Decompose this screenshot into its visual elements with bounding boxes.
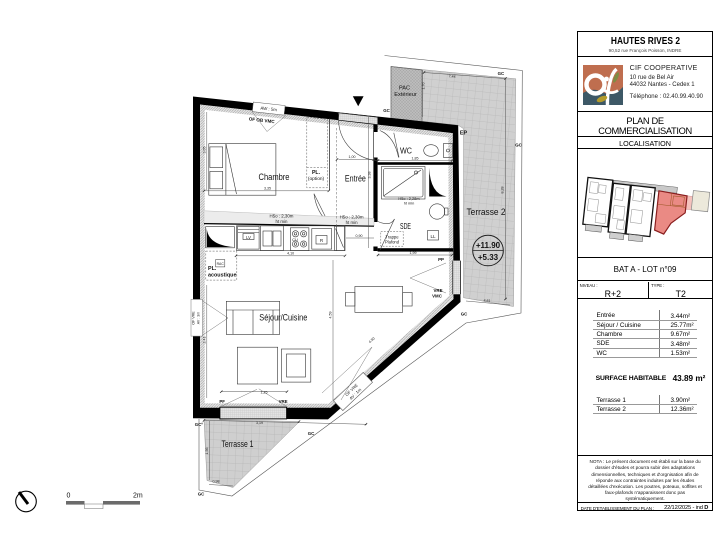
svg-text:Chambre: Chambre <box>259 172 290 182</box>
svg-text:2,41: 2,41 <box>202 337 206 344</box>
svg-text:VRE: VRE <box>433 288 442 293</box>
svg-text:LL: LL <box>430 234 436 239</box>
svg-text:ht min: ht min <box>276 219 289 224</box>
svg-text:4,10: 4,10 <box>287 251 294 255</box>
svg-text:2m: 2m <box>133 493 143 500</box>
svg-text:GC: GC <box>383 108 390 113</box>
svg-text:4,61: 4,61 <box>483 299 490 303</box>
svg-text:+5.33: +5.33 <box>478 253 499 262</box>
svg-text:1,00: 1,00 <box>349 155 356 159</box>
svg-text:GC: GC <box>515 143 522 148</box>
svg-text:VMC: VMC <box>432 294 443 299</box>
svg-text:8,28: 8,28 <box>501 187 505 194</box>
svg-text:OF VRE: OF VRE <box>192 311 196 325</box>
svg-text:OF OB VMC: OF OB VMC <box>248 116 275 124</box>
svg-text:+11.90: +11.90 <box>476 241 501 250</box>
svg-text:3,19: 3,19 <box>256 421 263 425</box>
svg-text:SDE: SDE <box>400 222 411 231</box>
svg-text:1,56: 1,56 <box>205 448 209 455</box>
svg-text:ht min: ht min <box>404 201 415 206</box>
svg-text:GC: GC <box>198 491 205 496</box>
svg-text:PP: PP <box>438 257 444 262</box>
svg-text:H5o : 2,30m: H5o : 2,30m <box>340 215 364 220</box>
svg-text:WC: WC <box>400 145 412 155</box>
svg-text:PL.: PL. <box>312 170 321 176</box>
svg-text:(option): (option) <box>308 176 325 182</box>
svg-text:3,38: 3,38 <box>367 172 371 179</box>
svg-text:Séjour/Cuisine: Séjour/Cuisine <box>259 312 307 322</box>
svg-text:AV : 3m: AV : 3m <box>197 312 201 325</box>
svg-text:PAC: PAC <box>399 86 410 92</box>
svg-text:0: 0 <box>67 493 71 500</box>
svg-text:0,98: 0,98 <box>213 479 220 483</box>
svg-text:Plafond: Plafond <box>385 240 400 245</box>
svg-text:acoustique: acoustique <box>208 273 236 279</box>
svg-text:4,50: 4,50 <box>368 336 376 344</box>
svg-text:GC: GC <box>308 431 315 436</box>
svg-text:GC: GC <box>461 312 468 317</box>
svg-text:PF: PF <box>219 399 225 404</box>
svg-text:1,85: 1,85 <box>412 156 419 160</box>
svg-text:Extérieur: Extérieur <box>394 92 417 98</box>
svg-text:7,44: 7,44 <box>448 74 455 79</box>
svg-text:H5o : 2,30m: H5o : 2,30m <box>270 214 294 219</box>
svg-text:4,59: 4,59 <box>328 312 332 319</box>
svg-text:EP: EP <box>460 131 468 137</box>
svg-text:CU: CU <box>292 237 298 242</box>
svg-text:3,05: 3,05 <box>202 147 206 154</box>
svg-text:Terrasse 1: Terrasse 1 <box>222 439 254 449</box>
svg-text:0,90: 0,90 <box>356 234 363 238</box>
svg-text:GCº: GCº <box>195 422 204 427</box>
svg-text:1,25: 1,25 <box>261 391 268 395</box>
svg-text:Terrasse 2: Terrasse 2 <box>467 207 506 217</box>
svg-text:GC: GC <box>498 71 505 76</box>
svg-text:Trappe: Trappe <box>385 234 399 239</box>
svg-text:1,70: 1,70 <box>422 83 426 90</box>
svg-text:1,99: 1,99 <box>410 251 417 255</box>
svg-text:R: R <box>320 238 324 243</box>
svg-text:PL.: PL. <box>208 266 217 272</box>
svg-text:3,35: 3,35 <box>264 186 271 190</box>
svg-text:Entrée: Entrée <box>345 173 366 183</box>
svg-text:RAC: RAC <box>217 262 225 266</box>
svg-text:ht min: ht min <box>346 220 359 225</box>
svg-text:LV: LV <box>246 235 251 240</box>
svg-text:VRE: VRE <box>279 399 288 404</box>
